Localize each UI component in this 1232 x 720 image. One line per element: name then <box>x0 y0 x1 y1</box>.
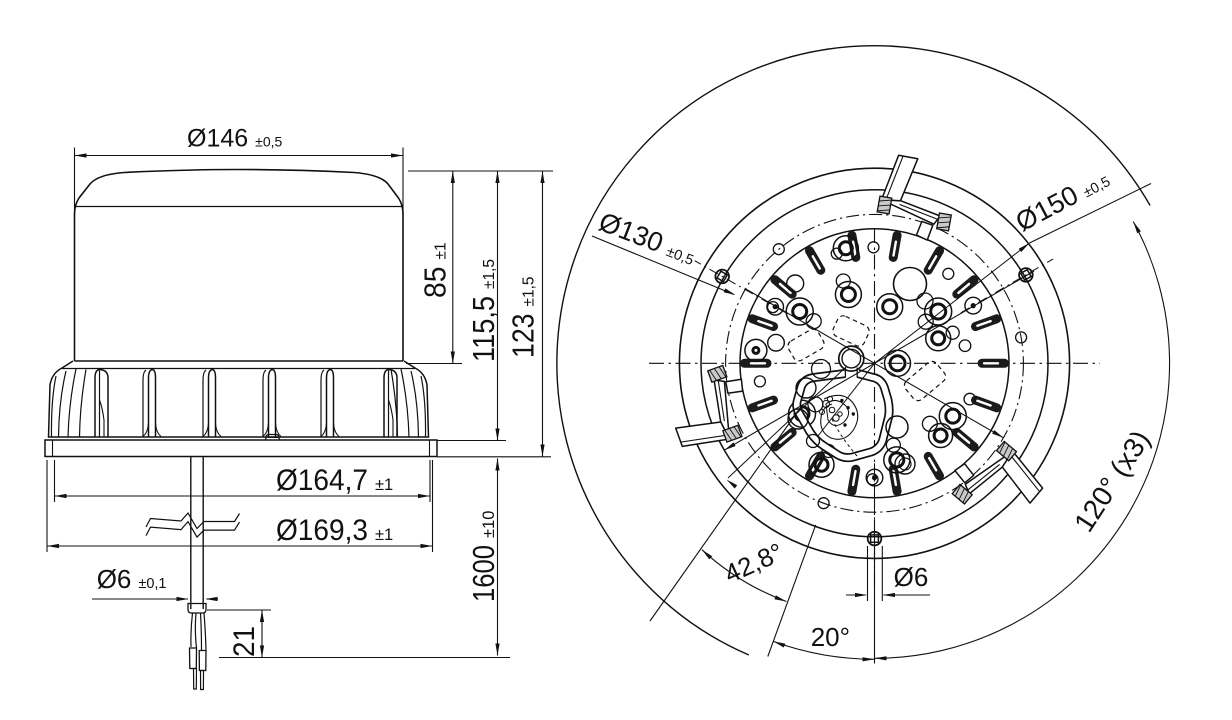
svg-text:20°: 20° <box>811 622 850 652</box>
svg-text:Ø6: Ø6 <box>894 562 929 592</box>
svg-text:21: 21 <box>228 626 261 657</box>
